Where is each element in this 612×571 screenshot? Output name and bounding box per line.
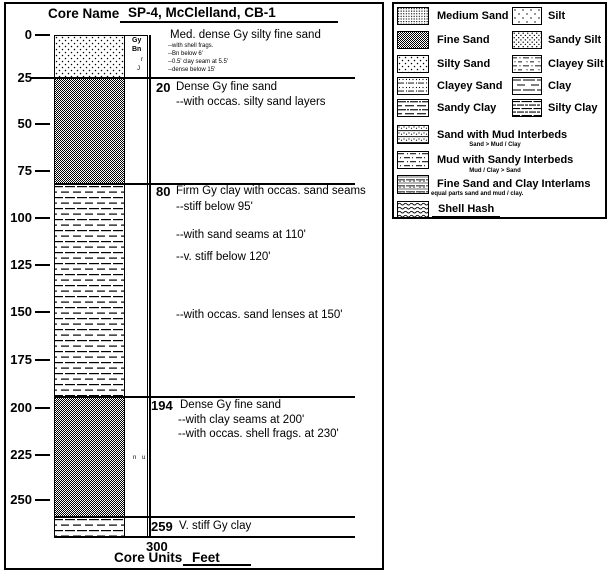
interval-boundary-194: [54, 396, 355, 398]
depth-tick: [35, 123, 50, 125]
legend-swatch-mud-with-sandy-interbeds: [397, 151, 429, 169]
core-units-label: Core Units: [114, 550, 182, 565]
depth-tick-label: 250: [6, 493, 32, 507]
depth-tick: [35, 34, 50, 36]
depth-tick-label: 175: [6, 353, 32, 367]
interval-depth-label: 80: [156, 184, 170, 199]
legend-item-label: Sandy Clay: [437, 102, 496, 114]
legend-item-label: Mud with Sandy Interbeds: [437, 154, 573, 166]
description-panel-border: [149, 35, 151, 538]
legend-swatch-clayey-sand: [397, 77, 429, 95]
lithology-column: [54, 35, 148, 538]
legend-item-sublabel: Mud / Clay > Sand: [437, 168, 553, 174]
depth-tick: [35, 264, 50, 266]
legend-swatch-sandy-silt: [512, 31, 542, 49]
core-name-value: SP-4, McClelland, CB-1: [128, 5, 276, 20]
legend-swatch-silt: [512, 7, 542, 25]
lithology-section-silty-sand: [55, 36, 124, 79]
lithology-section-clay: [55, 185, 124, 398]
interval-note: --with clay seams at 200': [178, 414, 304, 427]
depth-tick-label: 225: [6, 448, 32, 462]
legend-item-label: Sand with Mud Interbeds: [437, 129, 567, 141]
legend-swatch-sand-with-mud-interbeds: [397, 125, 429, 144]
color-code-line1: Gy: [132, 37, 141, 45]
depth-tick-label: 100: [6, 211, 32, 225]
legend-item-sublabel: Sand > Mud / Clay: [437, 142, 553, 148]
interval-note: --0.5' clay seam at 5.5': [168, 58, 228, 66]
depth-tick-label: 25: [6, 71, 32, 85]
legend-swatch-silty-clay: [512, 99, 542, 117]
interval-note: --with occas. silty sand layers: [176, 96, 326, 109]
legend-item-label: Shell Hash: [432, 203, 500, 218]
interval-title: Med. dense Gy silty fine sand: [170, 29, 321, 42]
legend-item-label: Clay: [548, 80, 571, 92]
depth-tick: [35, 499, 50, 501]
legend-swatch-clay: [512, 77, 542, 95]
interval-note: --with occas. shell frags. at 230': [178, 428, 339, 441]
depth-tick-label: 200: [6, 401, 32, 415]
core-log-panel: Core Name SP-4, McClelland, CB-1 0 25 50…: [4, 2, 384, 570]
legend-swatch-medium-sand: [397, 7, 429, 25]
interval-title: Dense Gy fine sand: [176, 81, 277, 94]
color-column-marks: n u: [133, 455, 147, 461]
depth-tick: [35, 407, 50, 409]
legend-item-label: Silt: [548, 10, 565, 22]
color-code-line2: Bn: [132, 46, 141, 54]
legend-swatch-fine-sand-and-clay-interlams: [397, 175, 429, 194]
legend-item-label: Sandy Silt: [548, 34, 601, 46]
interval-note: --with sand seams at 110': [176, 229, 306, 242]
depth-tick-label: 0: [6, 28, 32, 42]
legend-swatch-clayey-silt: [512, 55, 542, 73]
interval-title: Dense Gy fine sand: [180, 399, 281, 412]
legend-item-label: Fine Sand and Clay Interlams: [437, 178, 590, 190]
color-column-divider: [124, 36, 125, 537]
interval-boundary-259: [54, 516, 355, 518]
interval-boundary-20: [30, 77, 355, 79]
interval-note: --Bn below 6': [168, 50, 203, 58]
interval-depth-label: 20: [156, 80, 170, 95]
core-name-underline: [120, 21, 338, 23]
legend-item-label: Silty Sand: [437, 58, 490, 70]
core-log-screenshot: { "title": { "label": "Core Name", "valu…: [0, 0, 612, 571]
legend-swatch-sandy-clay: [397, 99, 429, 117]
depth-tick: [35, 217, 50, 219]
core-units-underline: [183, 564, 251, 566]
depth-tick-label: 75: [6, 164, 32, 178]
depth-tick-label: 150: [6, 305, 32, 319]
interval-note: --with occas. sand lenses at 150': [176, 309, 342, 322]
lithology-section-fine-sand: [55, 79, 124, 185]
legend-panel: Medium Sand Fine Sand Silty Sand Clayey …: [392, 2, 607, 219]
color-column-mark: r: [141, 57, 143, 63]
legend-swatch-shell-hash: [397, 201, 429, 218]
core-name-label: Core Name: [48, 6, 119, 21]
interval-depth-label: 194: [151, 398, 173, 413]
depth-tick: [35, 359, 50, 361]
lithology-section-fine-sand: [55, 398, 124, 518]
depth-tick-label: 50: [6, 117, 32, 131]
legend-item-sublabel: equal parts sand and mud / clay.: [431, 191, 523, 197]
interval-depth-label: 259: [151, 519, 173, 534]
interval-note: --v. stiff below 120': [176, 251, 270, 264]
depth-tick: [35, 454, 50, 456]
legend-swatch-fine-sand: [397, 31, 429, 49]
column-bottom-line: [54, 536, 355, 538]
legend-item-label: Fine Sand: [437, 34, 490, 46]
interval-title: Firm Gy clay with occas. sand seams: [176, 185, 366, 198]
legend-swatch-silty-sand: [397, 55, 429, 73]
interval-title: V. stiff Gy clay: [179, 520, 251, 533]
interval-note: --stiff below 95': [176, 201, 253, 214]
legend-item-label: Clayey Sand: [437, 80, 502, 92]
depth-tick-label: 125: [6, 258, 32, 272]
legend-item-label: Silty Clay: [548, 102, 598, 114]
depth-tick: [35, 170, 50, 172]
core-units-value: Feet: [192, 550, 220, 565]
color-column-mark: J: [137, 66, 140, 72]
depth-tick: [35, 311, 50, 313]
legend-item-label: Medium Sand: [437, 10, 509, 22]
legend-item-label: Clayey Silt: [548, 58, 604, 70]
interval-note: --dense below 15': [168, 66, 215, 74]
interval-note: --with shell frags.: [168, 42, 213, 50]
lithology-section-clay: [55, 518, 124, 537]
